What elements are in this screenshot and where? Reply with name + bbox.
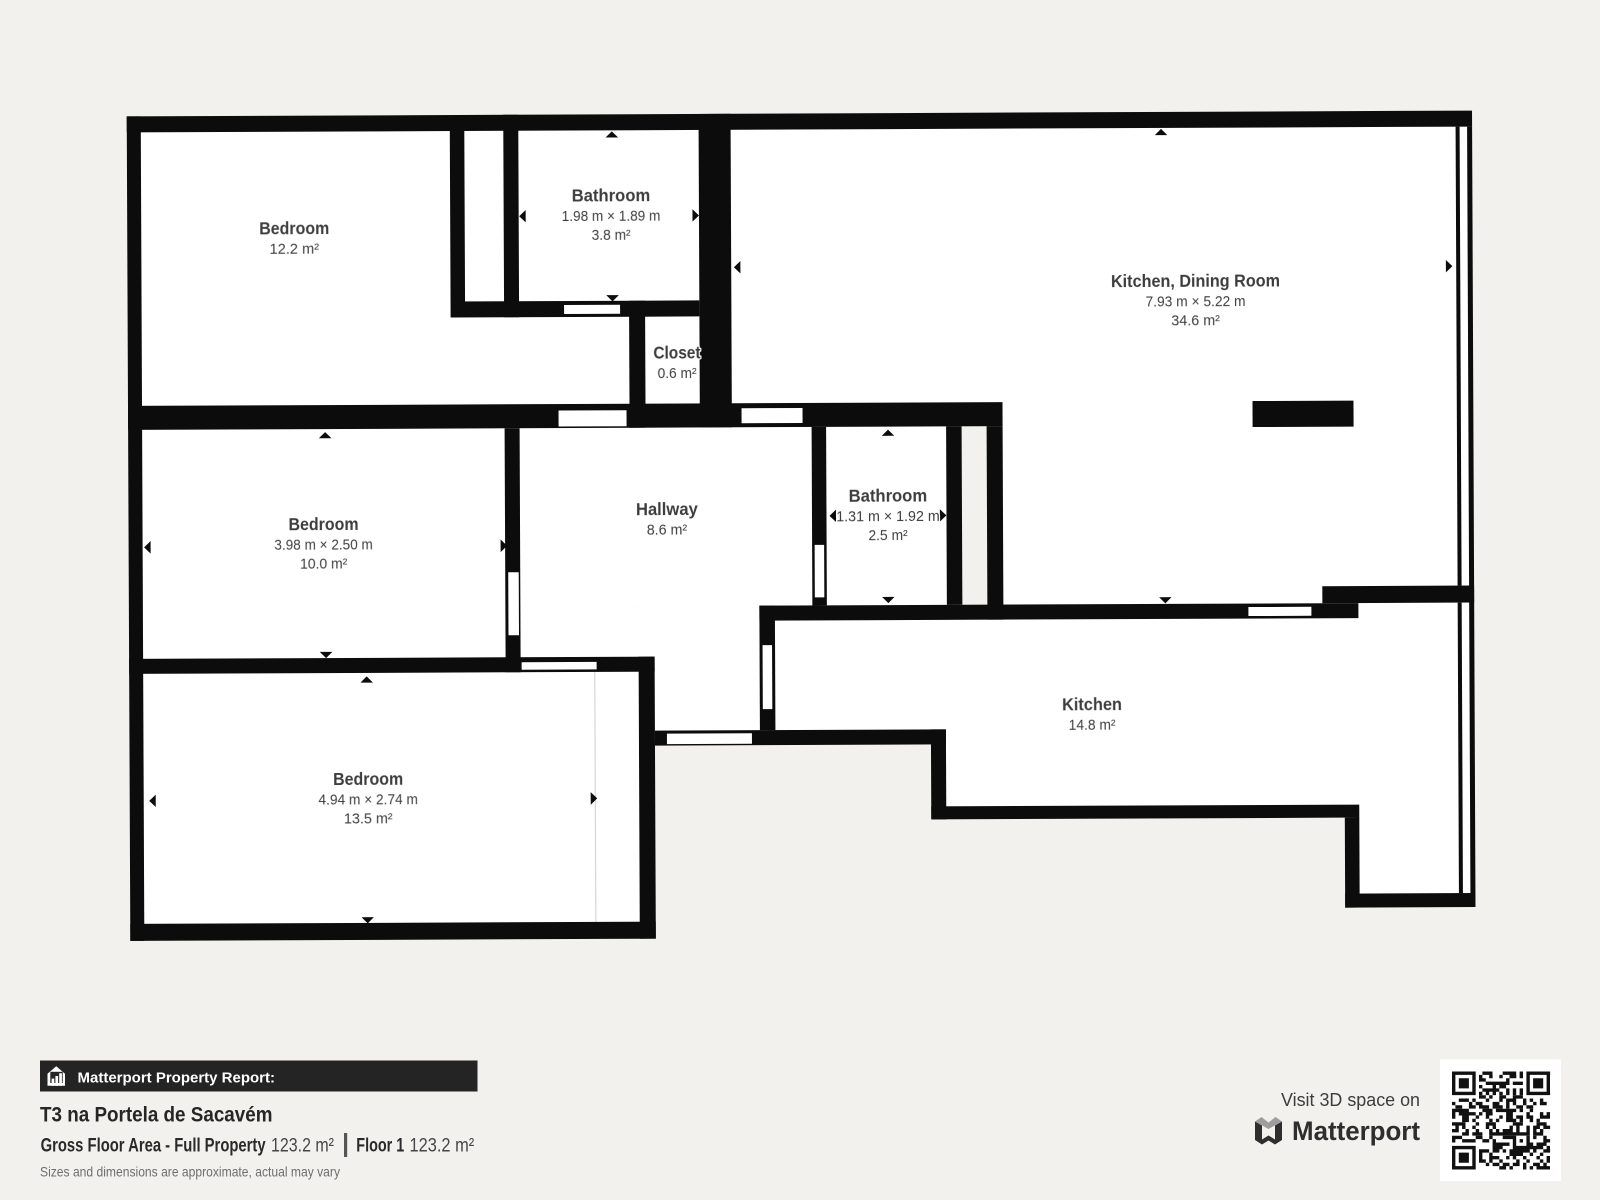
svg-text:Bedroom: Bedroom — [259, 218, 329, 238]
svg-text:123.2 m²: 123.2 m² — [271, 1136, 334, 1157]
svg-text:1.31 m × 1.92 m: 1.31 m × 1.92 m — [836, 509, 940, 525]
svg-text:Bedroom: Bedroom — [333, 769, 403, 789]
svg-text:Bedroom: Bedroom — [288, 514, 358, 534]
svg-text:3.98 m × 2.50 m: 3.98 m × 2.50 m — [274, 538, 372, 554]
svg-text:13.5 m²: 13.5 m² — [344, 811, 393, 827]
svg-text:Kitchen, Dining Room: Kitchen, Dining Room — [1111, 270, 1280, 291]
svg-text:3.8 m²: 3.8 m² — [592, 228, 631, 244]
svg-text:1.98 m × 1.89 m: 1.98 m × 1.89 m — [562, 209, 661, 225]
svg-text:Bathroom: Bathroom — [572, 185, 651, 205]
svg-text:Visit 3D space on: Visit 3D space on — [1281, 1090, 1420, 1110]
svg-text:4.94 m × 2.74 m: 4.94 m × 2.74 m — [318, 792, 417, 808]
svg-text:0.6 m²: 0.6 m² — [658, 366, 697, 382]
svg-text:Matterport Property Report:: Matterport Property Report: — [78, 1071, 276, 1087]
svg-text:Matterport: Matterport — [1292, 1116, 1420, 1146]
svg-text:T3 na Portela de Sacavém: T3 na Portela de Sacavém — [40, 1104, 273, 1127]
svg-text:123.2 m²: 123.2 m² — [410, 1136, 475, 1157]
svg-text:8.6 m²: 8.6 m² — [647, 522, 688, 538]
svg-text:Kitchen: Kitchen — [1062, 694, 1122, 714]
svg-text:Floor 1: Floor 1 — [356, 1136, 404, 1157]
svg-text:Sizes and dimensions are appro: Sizes and dimensions are approximate, ac… — [40, 1165, 340, 1180]
svg-text:Bathroom: Bathroom — [849, 485, 928, 505]
svg-text:12.2 m²: 12.2 m² — [270, 241, 320, 257]
svg-text:7.93 m × 5.22 m: 7.93 m × 5.22 m — [1146, 294, 1246, 310]
svg-text:34.6 m²: 34.6 m² — [1171, 313, 1220, 329]
svg-text:Closet: Closet — [653, 342, 700, 362]
svg-text:14.8 m²: 14.8 m² — [1069, 717, 1116, 733]
svg-text:Hallway: Hallway — [636, 499, 698, 519]
svg-text:Gross Floor Area - Full Proper: Gross Floor Area - Full Property — [41, 1136, 266, 1157]
svg-text:10.0 m²: 10.0 m² — [300, 557, 347, 573]
svg-text:2.5 m²: 2.5 m² — [868, 528, 908, 544]
